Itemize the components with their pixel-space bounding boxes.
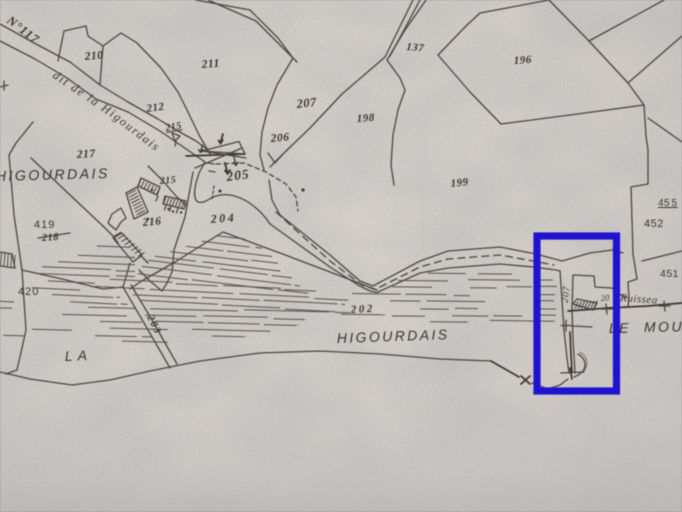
svg-text:196: 196 [513, 54, 532, 67]
svg-text:210: 210 [83, 49, 104, 63]
svg-text:211: 211 [200, 57, 220, 71]
svg-text:420: 420 [18, 286, 39, 298]
svg-text:419: 419 [34, 219, 55, 231]
svg-text:202: 202 [350, 303, 376, 316]
svg-text:216: 216 [141, 215, 162, 229]
svg-text:215: 215 [158, 175, 176, 187]
svg-text:45 5: 45 5 [658, 198, 678, 209]
svg-text:LA: LA [65, 347, 93, 364]
svg-text:198: 198 [356, 112, 375, 125]
svg-text:137: 137 [406, 41, 425, 55]
svg-text:199: 199 [450, 176, 469, 190]
svg-text:217: 217 [76, 148, 97, 161]
svg-text:205: 205 [225, 166, 251, 184]
svg-text:HIGOURDAIS: HIGOURDAIS [0, 166, 110, 185]
svg-text:451: 451 [660, 268, 679, 280]
svg-text:20: 20 [600, 292, 610, 303]
svg-text:206: 206 [269, 131, 290, 145]
svg-text:207: 207 [561, 285, 573, 304]
svg-text:207: 207 [295, 95, 318, 111]
svg-text:MOU: MOU [644, 318, 682, 335]
svg-text:218: 218 [40, 232, 59, 244]
svg-text:204: 204 [209, 210, 236, 226]
svg-text:452: 452 [644, 218, 664, 230]
